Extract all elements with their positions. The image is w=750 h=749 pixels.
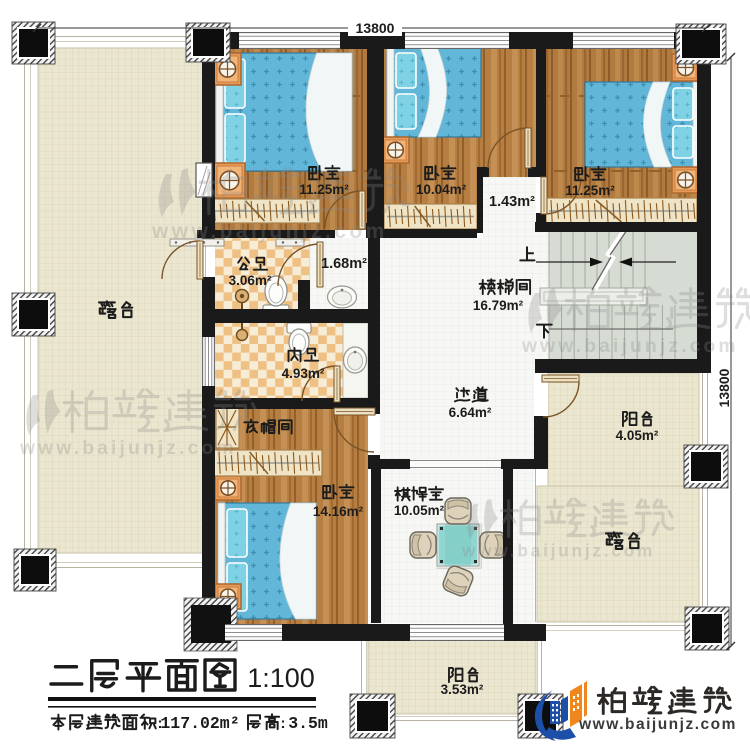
svg-text:1:100: 1:100 bbox=[247, 663, 315, 693]
svg-text:3.06m²: 3.06m² bbox=[229, 273, 272, 288]
svg-text:www.baijunjz.com: www.baijunjz.com bbox=[19, 438, 237, 459]
svg-text:4.93m²: 4.93m² bbox=[282, 366, 325, 381]
svg-text:13800: 13800 bbox=[356, 20, 395, 36]
svg-text:www.baijunjz.com: www.baijunjz.com bbox=[461, 540, 655, 560]
svg-text:3.53m²: 3.53m² bbox=[441, 682, 484, 697]
svg-text:10.05m²: 10.05m² bbox=[394, 503, 445, 518]
svg-text:www.baijunjz.com: www.baijunjz.com bbox=[151, 220, 388, 243]
svg-text::: : bbox=[281, 715, 286, 732]
svg-text:1.68m²: 1.68m² bbox=[321, 256, 367, 272]
svg-text:117.02m²: 117.02m² bbox=[160, 714, 239, 733]
svg-text:14.16m²: 14.16m² bbox=[313, 504, 364, 519]
svg-text:6.64m²: 6.64m² bbox=[449, 405, 492, 420]
svg-text:16.79m²: 16.79m² bbox=[473, 298, 524, 313]
svg-text:13800: 13800 bbox=[716, 368, 732, 407]
svg-text:1.43m²: 1.43m² bbox=[489, 194, 535, 210]
svg-text:www.baijunjz.com: www.baijunjz.com bbox=[578, 716, 737, 733]
svg-text:www.baijunjz.com: www.baijunjz.com bbox=[521, 336, 739, 357]
svg-text:3.5m: 3.5m bbox=[288, 714, 328, 733]
svg-text:11.25m²: 11.25m² bbox=[565, 183, 615, 198]
svg-text:10.04m²: 10.04m² bbox=[416, 182, 467, 197]
svg-text:4.05m²: 4.05m² bbox=[616, 428, 659, 443]
svg-text:11.25m²: 11.25m² bbox=[299, 182, 349, 197]
